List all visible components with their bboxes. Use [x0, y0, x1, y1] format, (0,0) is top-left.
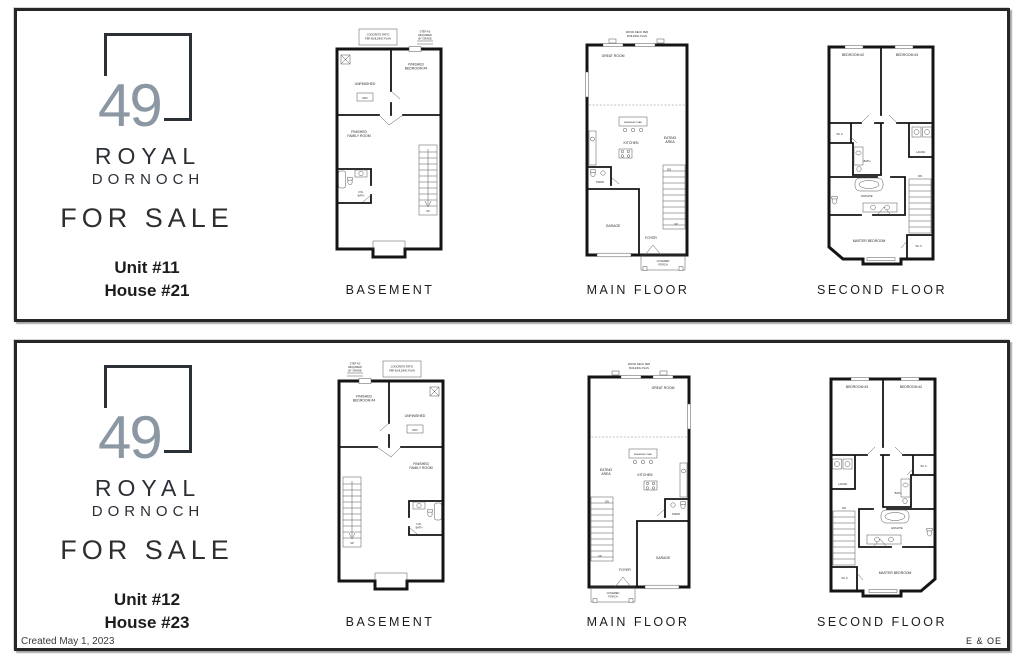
label-deck1: WOOD DECK PER [626, 30, 648, 34]
label-eat2: AREA [665, 140, 675, 144]
label-step2: REQUIRED [418, 33, 432, 37]
basement-plan: CONCRETE PATIO PER BUILDING PLAN STEP AS… [325, 27, 455, 297]
label-dn: DN [918, 174, 922, 178]
label-step3: BY GRADE [348, 369, 362, 373]
label-foyer: FOYER [619, 568, 631, 572]
unit-info: Unit #11 House #21 [47, 257, 247, 303]
label-wic: W.I.C. [920, 464, 927, 468]
basement-floorplan: CONCRETE PATIO PER BUILDING PLAN STEP AS… [325, 27, 455, 279]
label-deck1: WOOD DECK PER [628, 362, 650, 366]
label-dn: DN [667, 168, 671, 172]
label-great: GREAT ROOM [602, 54, 625, 58]
created-date: Created May 1, 2023 [21, 636, 114, 647]
label-patio: CONCRETE PATIO [391, 365, 414, 369]
label-patio2: PER BUILDING PLAN [389, 369, 415, 373]
label-wic2: W.I.C. [841, 576, 848, 580]
label-bathb: BATH [416, 526, 423, 530]
label-unfinished: UNFINISHED [405, 414, 426, 418]
label-patio: CONCRETE PATIO [367, 33, 390, 37]
main-floorplan: WOOD DECK PER BUILDING PLAN GREAT ROOM B… [573, 27, 703, 279]
label-bed4b: BEDROOM #4 [405, 67, 427, 71]
main-floor-caption: MAIN FLOOR [573, 615, 703, 629]
main-floor-caption: MAIN FLOOR [573, 283, 703, 297]
label-batha: FIN. [417, 522, 422, 526]
label-garage: GARAGE [606, 224, 621, 228]
logo-number: 49 [95, 408, 164, 468]
unit-number: Unit #12 [47, 589, 247, 612]
label-kitchen: KITCHEN [638, 473, 653, 477]
label-deck2: BUILDING PLAN [627, 34, 647, 38]
label-eat2: AREA [601, 472, 611, 476]
brand-dornoch: DORNOCH [55, 503, 241, 520]
house-number: House #21 [47, 280, 247, 303]
label-ensuite: ENSUITE [861, 194, 873, 198]
label-dn: DN [842, 506, 846, 510]
label-step1: STEP AS [420, 30, 431, 34]
unit-number: Unit #11 [47, 257, 247, 280]
label-step3: BY GRADE [418, 37, 432, 41]
label-porch2: PORCH [658, 262, 667, 266]
label-bath: BATH [864, 159, 871, 163]
label-up: UP [426, 209, 430, 213]
label-up: UP [598, 554, 602, 558]
basement-caption: BASEMENT [325, 283, 455, 297]
label-unfinished: UNFINISHED [355, 82, 376, 86]
second-floorplan: BEDROOM #2 BEDROOM #3 W.I.C. BATH LAUND.… [817, 27, 947, 279]
label-bathb: BATH [358, 194, 365, 198]
label-ensuite: ENSUITE [891, 526, 903, 530]
for-sale-heading: FOR SALE [47, 203, 247, 234]
label-bed2: BEDROOM #2 [900, 385, 922, 389]
label-famb: FAMILY ROOM [409, 466, 432, 470]
for-sale-heading: FOR SALE [47, 535, 247, 566]
label-bed3: BEDROOM #3 [896, 53, 918, 57]
brand-royal: ROYAL [55, 475, 241, 502]
label-wic: W.I.C. [836, 132, 843, 136]
logo-square: 49 [104, 365, 192, 453]
label-bar: BREAKFAST BAR [634, 453, 652, 456]
label-master: MASTER BEDROOM [879, 571, 912, 575]
label-laund: LAUND. [916, 150, 926, 154]
logo-number: 49 [95, 76, 164, 136]
label-porch1: COVERED [657, 259, 670, 263]
label-laund: LAUND. [838, 482, 848, 486]
label-garage: GARAGE [656, 556, 671, 560]
basement-plan: CONCRETE PATIO PER BUILDING PLAN STEP AS… [325, 359, 455, 629]
second-floor-plan: BEDROOM #2 BEDROOM #3 W.I.C. BATH LAUND.… [817, 359, 947, 629]
label-famb: FAMILY ROOM [347, 134, 370, 138]
second-floorplan: BEDROOM #2 BEDROOM #3 W.I.C. BATH LAUND.… [817, 359, 947, 611]
label-batha: FIN. [359, 190, 364, 194]
main-floorplan: WOOD DECK PER BUILDING PLAN GREAT ROOM B… [573, 359, 703, 611]
label-bed4b: BEDROOM #4 [353, 399, 375, 403]
unit-info: Unit #12 House #23 [47, 589, 247, 635]
brand-royal: ROYAL [55, 143, 241, 170]
brand-logo: 49 ROYAL DORNOCH [55, 33, 241, 188]
house-number: House #23 [47, 612, 247, 635]
main-floor-plan: WOOD DECK PER BUILDING PLAN GREAT ROOM B… [573, 27, 703, 297]
label-hrv: HRV [412, 428, 418, 432]
label-great: GREAT ROOM [652, 386, 675, 390]
label-bed2: BEDROOM #2 [842, 53, 864, 57]
second-floor-caption: SECOND FLOOR [817, 283, 947, 297]
label-pwdr: PWDR [596, 180, 604, 184]
label-dn: DN [605, 500, 609, 504]
listing-panel-unit-11: 49 ROYAL DORNOCH FOR SALE Unit #11 House… [14, 8, 1010, 322]
label-hrv: HRV [362, 96, 368, 100]
label-up: UP [674, 222, 678, 226]
main-floor-plan: WOOD DECK PER BUILDING PLAN GREAT ROOM B… [573, 359, 703, 629]
label-up: UP [350, 541, 354, 545]
logo-square: 49 [104, 33, 192, 121]
listing-panel-unit-12: 49 ROYAL DORNOCH FOR SALE Unit #12 House… [14, 340, 1010, 651]
basement-caption: BASEMENT [325, 615, 455, 629]
label-patio2: PER BUILDING PLAN [365, 37, 391, 41]
label-step1: STEP AS [350, 362, 361, 366]
label-pwdr: PWDR [672, 512, 680, 516]
basement-floorplan: CONCRETE PATIO PER BUILDING PLAN STEP AS… [325, 359, 455, 611]
label-bath: BATH [895, 491, 902, 495]
label-deck2: BUILDING PLAN [629, 366, 649, 370]
second-floor-plan: BEDROOM #2 BEDROOM #3 W.I.C. BATH LAUND.… [817, 27, 947, 297]
second-floor-caption: SECOND FLOOR [817, 615, 947, 629]
label-porch1: COVERED [607, 591, 620, 595]
brand-logo: 49 ROYAL DORNOCH [55, 365, 241, 520]
label-bar: BREAKFAST BAR [624, 121, 642, 124]
label-step2: REQUIRED [348, 365, 362, 369]
eoe-note: E & OE [966, 636, 1002, 646]
label-master: MASTER BEDROOM [853, 239, 886, 243]
label-porch2: PORCH [608, 594, 617, 598]
label-bed3: BEDROOM #3 [846, 385, 868, 389]
label-foyer: FOYER [645, 236, 657, 240]
brand-dornoch: DORNOCH [55, 171, 241, 188]
label-wic2: W.I.C. [915, 244, 922, 248]
label-kitchen: KITCHEN [624, 141, 639, 145]
